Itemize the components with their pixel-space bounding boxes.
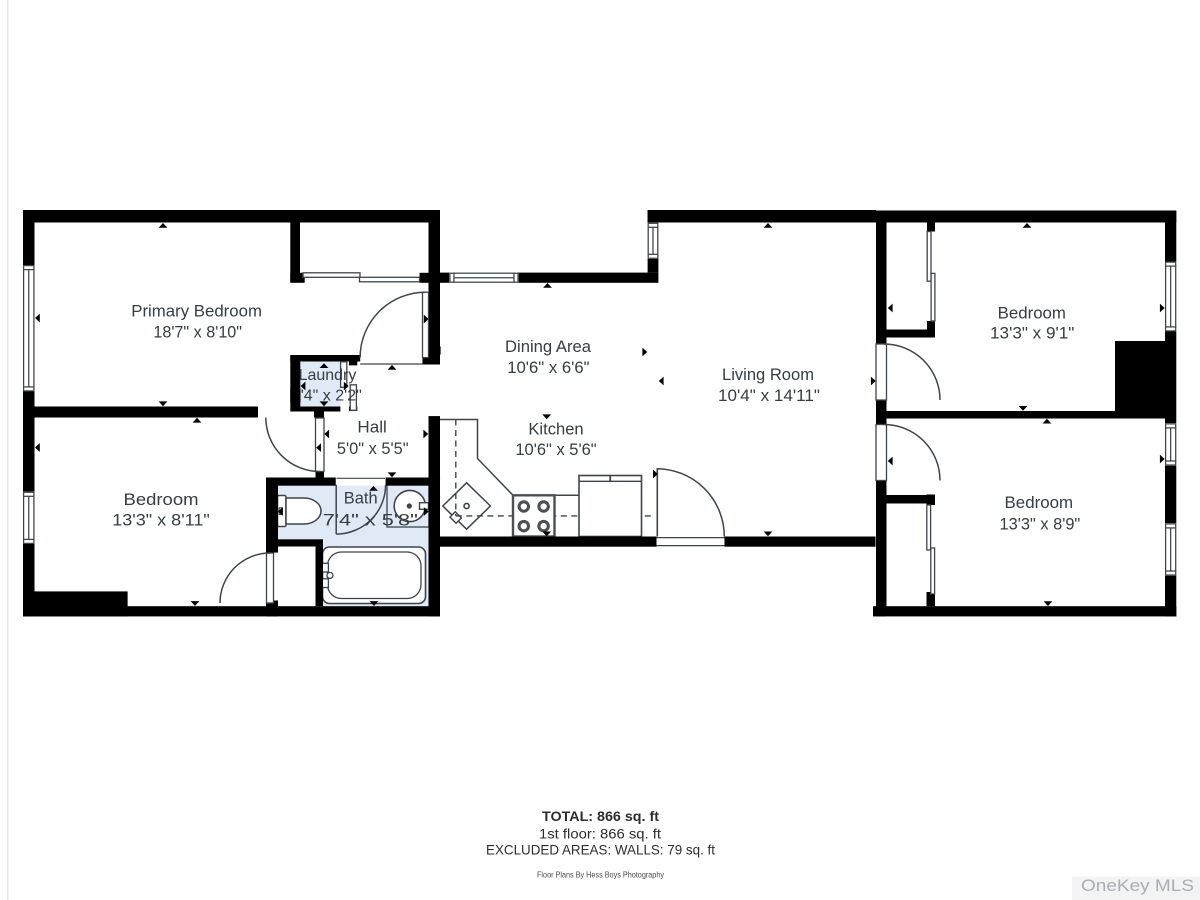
svg-text:13'3" x 8'9": 13'3" x 8'9" [1000,515,1081,534]
svg-text:Dining Area: Dining Area [505,337,592,356]
svg-text:Bedroom: Bedroom [1005,493,1074,512]
svg-text:13'3" x 9'1": 13'3" x 9'1" [990,323,1074,342]
svg-text:Bedroom: Bedroom [124,490,199,509]
svg-text:Kitchen: Kitchen [528,420,583,439]
svg-text:10'6" x 6'6": 10'6" x 6'6" [507,358,589,377]
svg-text:5'0" x 5'5": 5'0" x 5'5" [337,439,409,458]
svg-text:10'4" x 14'11": 10'4" x 14'11" [718,386,820,405]
svg-text:7'4" x 5'8": 7'4" x 5'8" [323,511,418,530]
svg-text:TOTAL: 866 sq. ft: TOTAL: 866 sq. ft [542,808,659,824]
svg-text:Laundry: Laundry [299,367,357,384]
svg-text:2'4" x 2'2": 2'4" x 2'2" [292,388,362,405]
svg-text:Living Room: Living Room [722,365,814,384]
svg-text:Hall: Hall [357,417,386,436]
svg-text:Bath: Bath [344,488,378,507]
svg-text:18'7" x 8'10": 18'7" x 8'10" [153,322,242,341]
svg-text:Floor Plans By Hess Boys Photo: Floor Plans By Hess Boys Photography [537,870,664,879]
svg-text:10'6" x 5'6": 10'6" x 5'6" [515,440,596,459]
svg-text:1st floor: 866 sq. ft: 1st floor: 866 sq. ft [539,825,661,841]
svg-text:EXCLUDED AREAS: WALLS: 79 sq.: EXCLUDED AREAS: WALLS: 79 sq. ft [486,841,715,857]
svg-text:OneKey MLS: OneKey MLS [1081,876,1194,895]
svg-text:Bedroom: Bedroom [998,303,1066,322]
svg-text:Primary Bedroom: Primary Bedroom [131,301,262,320]
svg-text:13'3" x 8'11": 13'3" x 8'11" [112,511,210,530]
